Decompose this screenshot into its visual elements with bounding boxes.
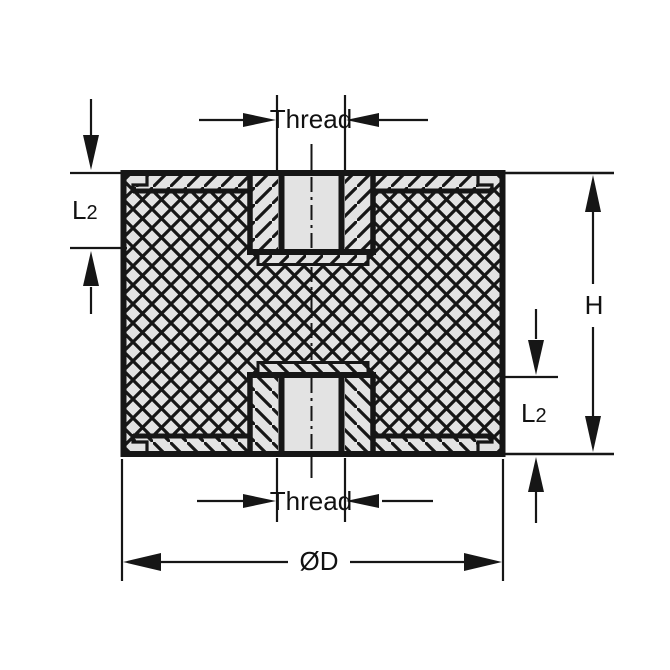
diameter-label: ØD	[300, 546, 339, 576]
thread-bottom-label: Thread	[270, 486, 352, 516]
mount-section-drawing: Thread Thread L2 H L2	[0, 0, 670, 670]
technical-drawing-canvas: Thread Thread L2 H L2	[0, 0, 670, 670]
height-label: H	[585, 290, 604, 320]
thread-top-label: Thread	[270, 104, 352, 134]
